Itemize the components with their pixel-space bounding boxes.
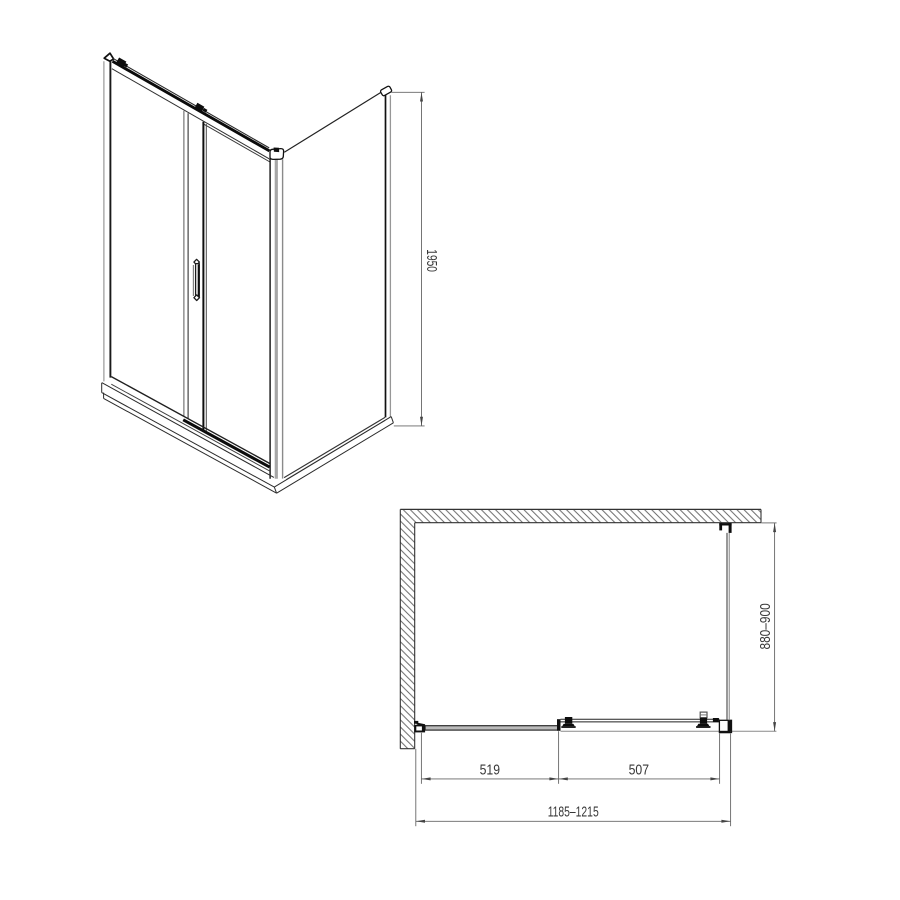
svg-text:507: 507 — [629, 761, 649, 778]
svg-text:1950: 1950 — [423, 249, 440, 272]
svg-text:1185–1215: 1185–1215 — [548, 804, 599, 821]
svg-text:519: 519 — [480, 761, 500, 778]
svg-text:880–900: 880–900 — [757, 603, 774, 649]
